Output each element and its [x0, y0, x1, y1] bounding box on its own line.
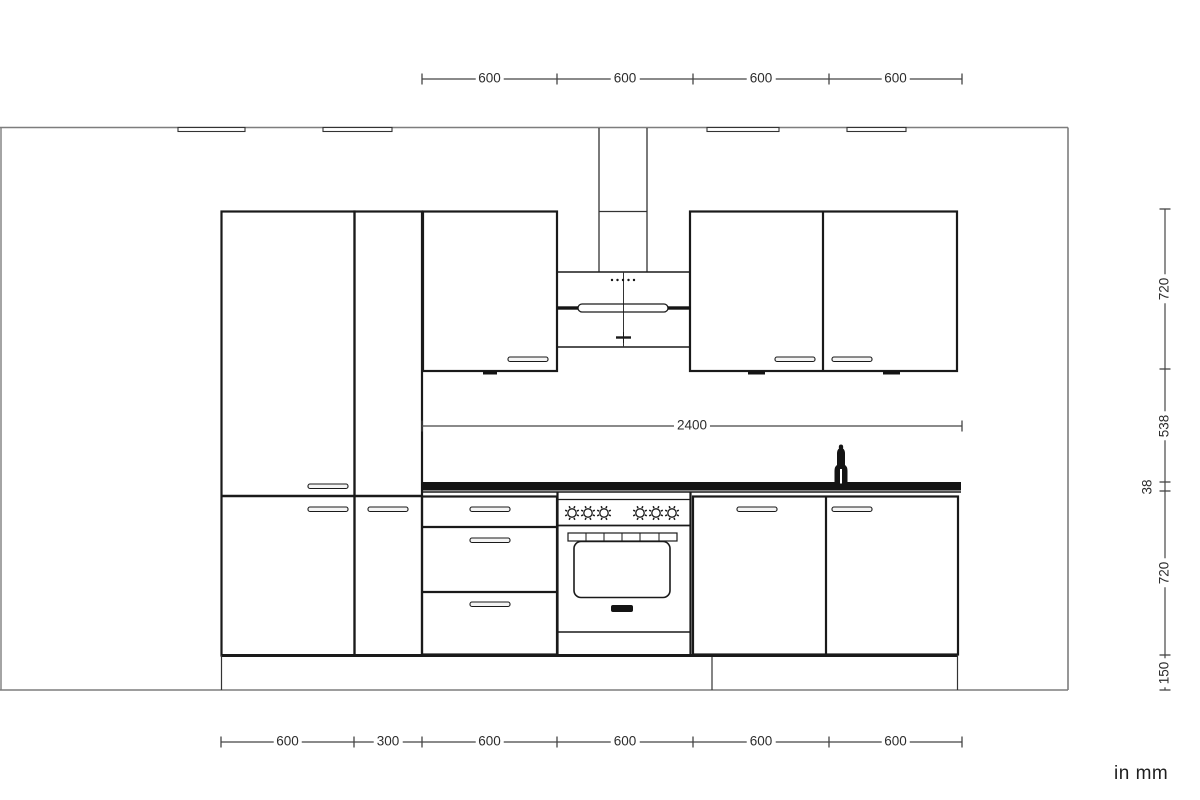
door-handle — [470, 507, 510, 512]
burner-knob-tick — [569, 506, 570, 508]
burner-knob-tick — [597, 515, 599, 516]
door-handle — [775, 357, 815, 362]
door-handle — [368, 507, 408, 512]
burner-knob-tick — [609, 510, 611, 511]
burner-knob-tick — [677, 510, 679, 511]
burner-knob-tick — [577, 515, 579, 516]
burner-knob-tick — [593, 510, 595, 511]
door-handle — [832, 357, 872, 362]
burner-knob-tick — [661, 510, 663, 511]
burner-knob-tick — [585, 518, 586, 520]
drawer-base-unit — [422, 497, 557, 655]
door-handle — [832, 507, 872, 512]
wall-rail — [707, 128, 779, 132]
burner-knob-tick — [658, 506, 659, 508]
hood-control-dots — [616, 279, 618, 281]
burner-knob-tick — [574, 506, 575, 508]
wall-rail — [847, 128, 906, 132]
under-cabinet-light — [483, 371, 497, 375]
burner-knob-tick — [665, 510, 667, 511]
units-label: in mm — [1114, 763, 1168, 785]
burner-knob-tick — [669, 506, 670, 508]
burner-knob-tick — [637, 506, 638, 508]
burner-knob-tick — [633, 515, 635, 516]
door-handle — [308, 507, 348, 512]
oven-window — [574, 542, 670, 598]
burner-knob-tick — [674, 506, 675, 508]
burner-knob — [600, 509, 608, 517]
burner-knob-tick — [569, 518, 570, 520]
burner-knob-tick — [601, 506, 602, 508]
door-handle — [470, 538, 510, 543]
burner-knob-tick — [658, 518, 659, 520]
burner-knob-tick — [581, 510, 583, 511]
burner-knob-tick — [590, 518, 591, 520]
burner-knob-tick — [633, 510, 635, 511]
worktop — [421, 482, 961, 491]
burner-knob-tick — [653, 518, 654, 520]
burner-knob-tick — [649, 510, 651, 511]
burner-knob — [636, 509, 644, 517]
burner-knob-tick — [661, 515, 663, 516]
burner-knob-tick — [574, 518, 575, 520]
burner-knob-tick — [609, 515, 611, 516]
wall-rail — [178, 128, 245, 132]
hood-control-dots — [627, 279, 629, 281]
burner-knob-tick — [645, 515, 647, 516]
burner-knob-tick — [597, 510, 599, 511]
hood-control-dots — [611, 279, 613, 281]
burner-knob-tick — [669, 518, 670, 520]
burner-knob-tick — [601, 518, 602, 520]
tall-cabinet-narrow — [355, 212, 423, 656]
under-cabinet-light — [883, 371, 900, 375]
faucet-slit — [840, 469, 842, 484]
burner-knob-tick — [593, 515, 595, 516]
burner-knob-tick — [606, 506, 607, 508]
burner-knob — [568, 509, 576, 517]
oven-badge — [611, 605, 633, 612]
burner-knob-tick — [565, 515, 567, 516]
burner-knob-tick — [581, 515, 583, 516]
burner-knob-tick — [665, 515, 667, 516]
burner-knob — [668, 509, 676, 517]
burner-knob-tick — [585, 506, 586, 508]
hood-lamp-side-bar — [557, 306, 578, 309]
hood-control-dots — [633, 279, 635, 281]
burner-knob-tick — [565, 510, 567, 511]
burner-knob-tick — [577, 510, 579, 511]
hood-lamp-side-bar — [668, 306, 691, 309]
burner-knob-tick — [642, 506, 643, 508]
burner-knob-tick — [606, 518, 607, 520]
burner-knob-tick — [642, 518, 643, 520]
burner-knob-tick — [674, 518, 675, 520]
door-handle — [737, 507, 777, 512]
burner-knob-tick — [590, 506, 591, 508]
door-handle — [508, 357, 548, 362]
under-cabinet-light — [748, 371, 765, 375]
burner-knob-tick — [645, 510, 647, 511]
wall-rail — [323, 128, 392, 132]
tall-cabinet-left — [222, 212, 355, 656]
burner-knob — [584, 509, 592, 517]
hood-control-dots — [622, 279, 624, 281]
drawing-svg — [0, 0, 1200, 800]
burner-knob-tick — [649, 515, 651, 516]
burner-knob — [652, 509, 660, 517]
kitchen-elevation-canvas: 6006006006002400600300600600600600720538… — [0, 0, 1200, 800]
burner-knob-tick — [653, 506, 654, 508]
burner-knob-tick — [637, 518, 638, 520]
burner-knob-tick — [677, 515, 679, 516]
wall-cabinet-left — [423, 212, 557, 372]
door-handle — [308, 484, 348, 489]
door-handle — [470, 602, 510, 607]
